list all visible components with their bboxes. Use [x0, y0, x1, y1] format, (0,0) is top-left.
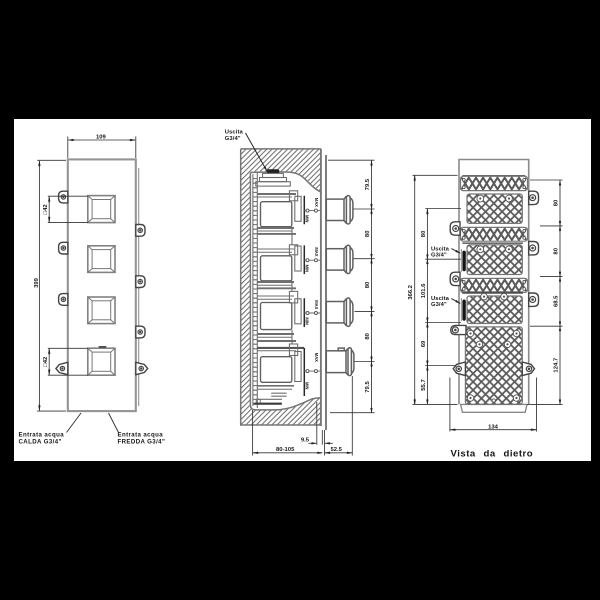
svg-text:124.7: 124.7	[554, 357, 560, 372]
svg-text:399: 399	[34, 277, 40, 288]
svg-text:52.5: 52.5	[330, 447, 342, 453]
svg-text:CALDA G3/4": CALDA G3/4"	[19, 438, 62, 445]
svg-text:MAX: MAX	[314, 353, 319, 362]
svg-text:MIN: MIN	[305, 215, 310, 223]
svg-text:MAX: MAX	[314, 247, 319, 256]
svg-text:MAX: MAX	[314, 198, 319, 207]
svg-text:□42: □42	[43, 204, 49, 215]
svg-text:Entrata acqua: Entrata acqua	[19, 431, 65, 438]
svg-text:80: 80	[554, 199, 560, 206]
svg-text:MIN: MIN	[305, 265, 310, 273]
svg-text:Vista da dietro: Vista da dietro	[451, 449, 534, 460]
svg-text:80: 80	[554, 247, 560, 254]
svg-text:80: 80	[365, 332, 371, 339]
svg-text:G3/4": G3/4"	[225, 136, 241, 142]
svg-text:101.6: 101.6	[421, 283, 427, 298]
svg-text:80-105: 80-105	[276, 447, 295, 453]
svg-text:80: 80	[365, 281, 371, 288]
svg-text:55.7: 55.7	[421, 379, 427, 391]
svg-text:9.5: 9.5	[301, 438, 310, 444]
svg-text:□42: □42	[43, 356, 49, 367]
svg-text:80: 80	[365, 230, 371, 237]
svg-text:79.5: 79.5	[365, 178, 371, 190]
svg-text:366.2: 366.2	[408, 284, 414, 299]
svg-text:G3/4": G3/4"	[431, 252, 447, 258]
svg-text:Entrata acqua: Entrata acqua	[118, 431, 164, 438]
svg-text:FREDDA G3/4": FREDDA G3/4"	[118, 438, 166, 445]
svg-text:109: 109	[96, 134, 107, 140]
svg-text:68.5: 68.5	[554, 295, 560, 307]
svg-text:80: 80	[421, 230, 427, 237]
svg-text:Uscita: Uscita	[225, 129, 244, 135]
svg-text:MIN: MIN	[305, 317, 310, 325]
svg-text:79.5: 79.5	[365, 381, 371, 393]
svg-text:69: 69	[421, 340, 427, 347]
svg-text:G3/4": G3/4"	[431, 302, 447, 308]
svg-text:134: 134	[488, 425, 499, 431]
svg-text:MAX: MAX	[314, 300, 319, 309]
svg-text:MIN: MIN	[305, 382, 310, 390]
